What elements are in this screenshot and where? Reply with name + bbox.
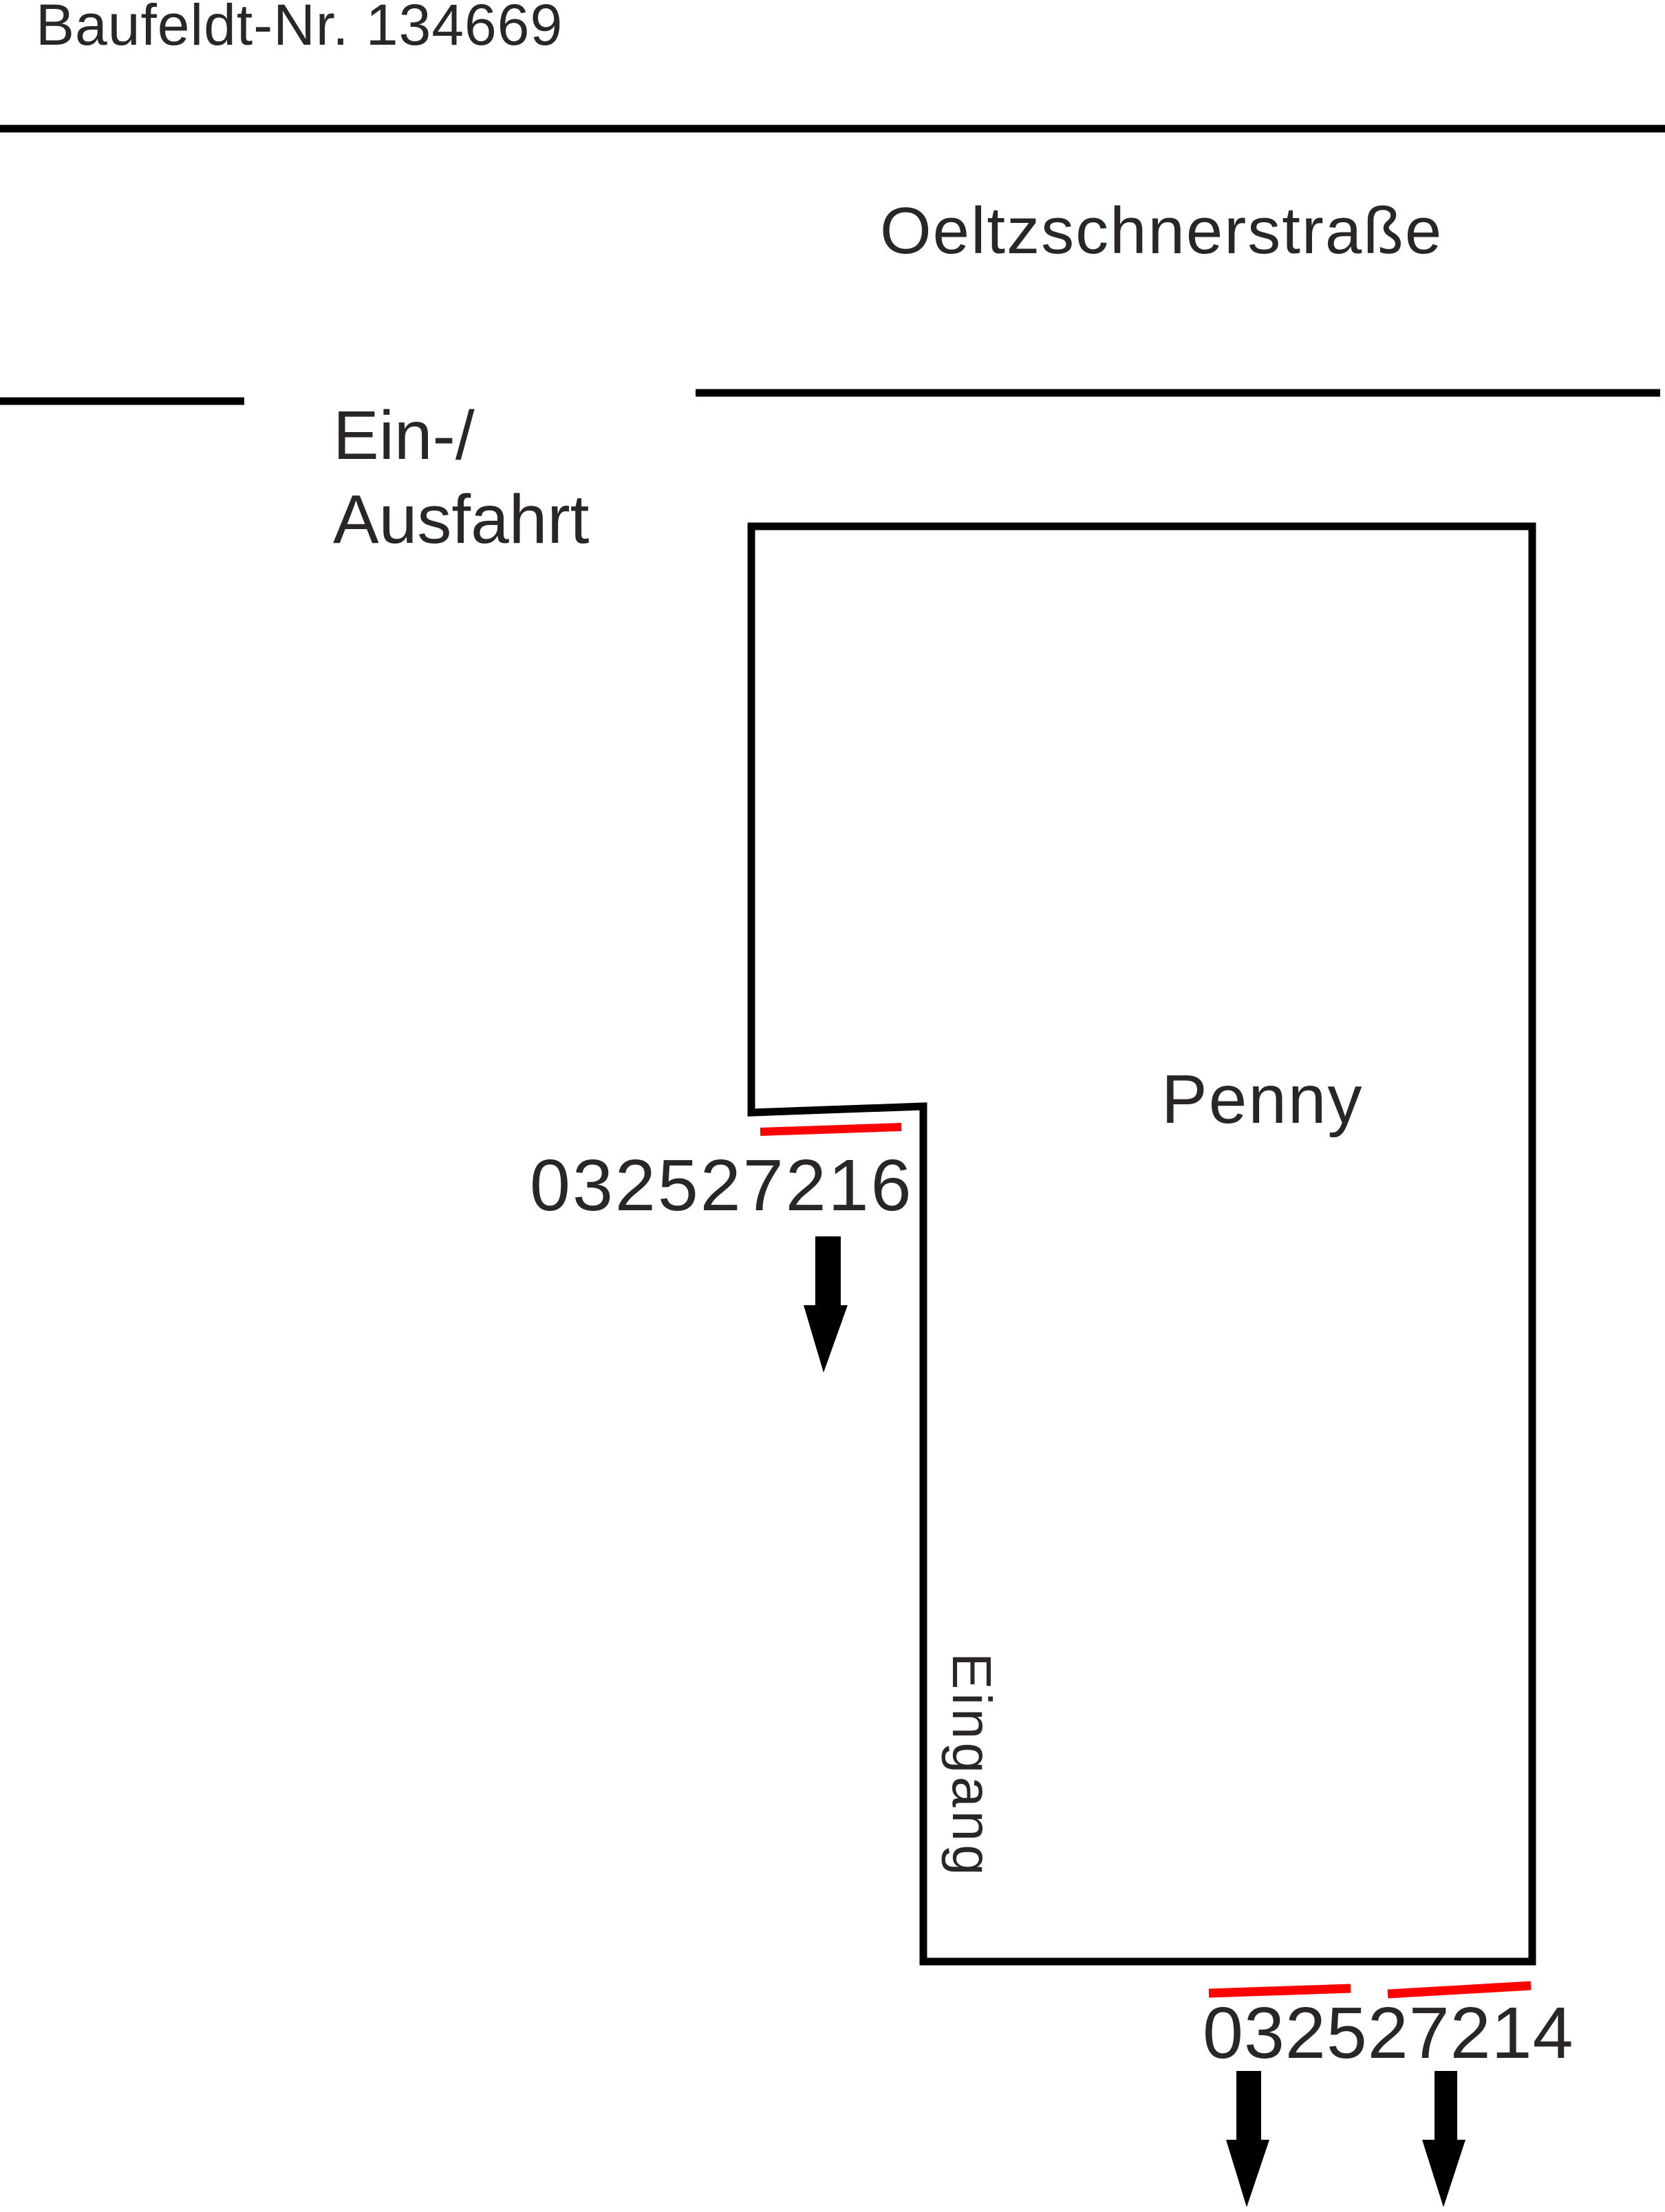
building-outline	[751, 526, 1532, 1962]
down-arrow-icon	[1422, 2071, 1465, 2207]
entrance-exit-label-line2: Ausfahrt	[333, 477, 589, 561]
plan-drawing	[0, 0, 1665, 2212]
down-arrow-icon	[1226, 2071, 1269, 2207]
building-name-label: Penny	[1161, 1065, 1364, 1134]
baufeld-number-label: Baufeldt-Nr. 134669	[36, 0, 563, 54]
lower-marker-id-label: 032527214	[1203, 1997, 1574, 2070]
upper-marker-highlight	[760, 1127, 901, 1132]
down-arrow-icon	[804, 1236, 848, 1373]
entrance-exit-label: Ein-/ Ausfahrt	[333, 394, 589, 561]
building-entrance-label: Eingang	[944, 1653, 999, 1879]
site-plan-page: Baufeldt-Nr. 134669 Oeltzschnerstraße Ei…	[0, 0, 1665, 2212]
street-name-label: Oeltzschnerstraße	[880, 198, 1443, 264]
entrance-exit-label-line1: Ein-/	[333, 394, 589, 477]
upper-marker-id-label: 032527216	[530, 1149, 914, 1222]
